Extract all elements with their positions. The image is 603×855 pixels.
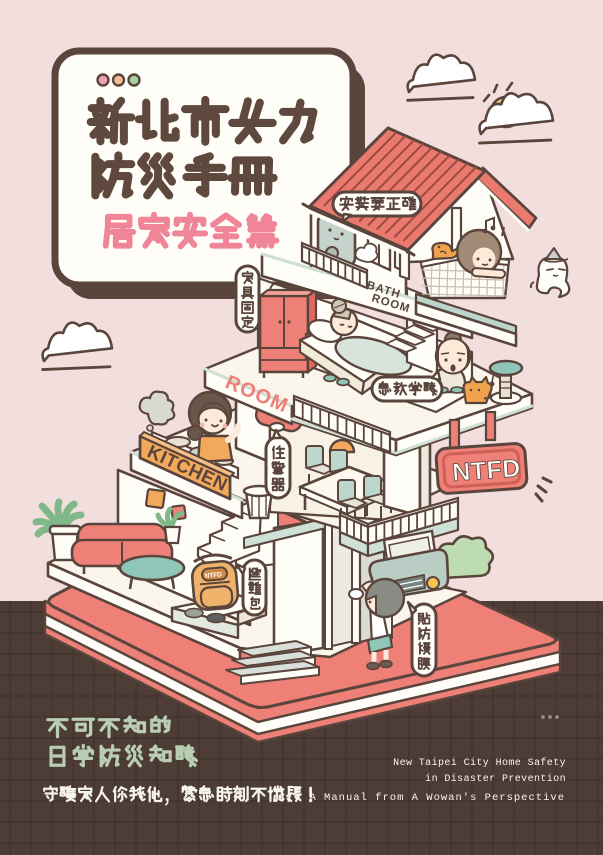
svg-text:A Manual from A Wowan's Perspe: A Manual from A Wowan's Perspective — [309, 792, 565, 804]
svg-text:New Taipei City Home Safety: New Taipei City Home Safety — [393, 757, 566, 769]
svg-text:in Disaster Prevention: in Disaster Prevention — [425, 773, 566, 785]
svg-text:NTFD: NTFD — [451, 454, 521, 487]
